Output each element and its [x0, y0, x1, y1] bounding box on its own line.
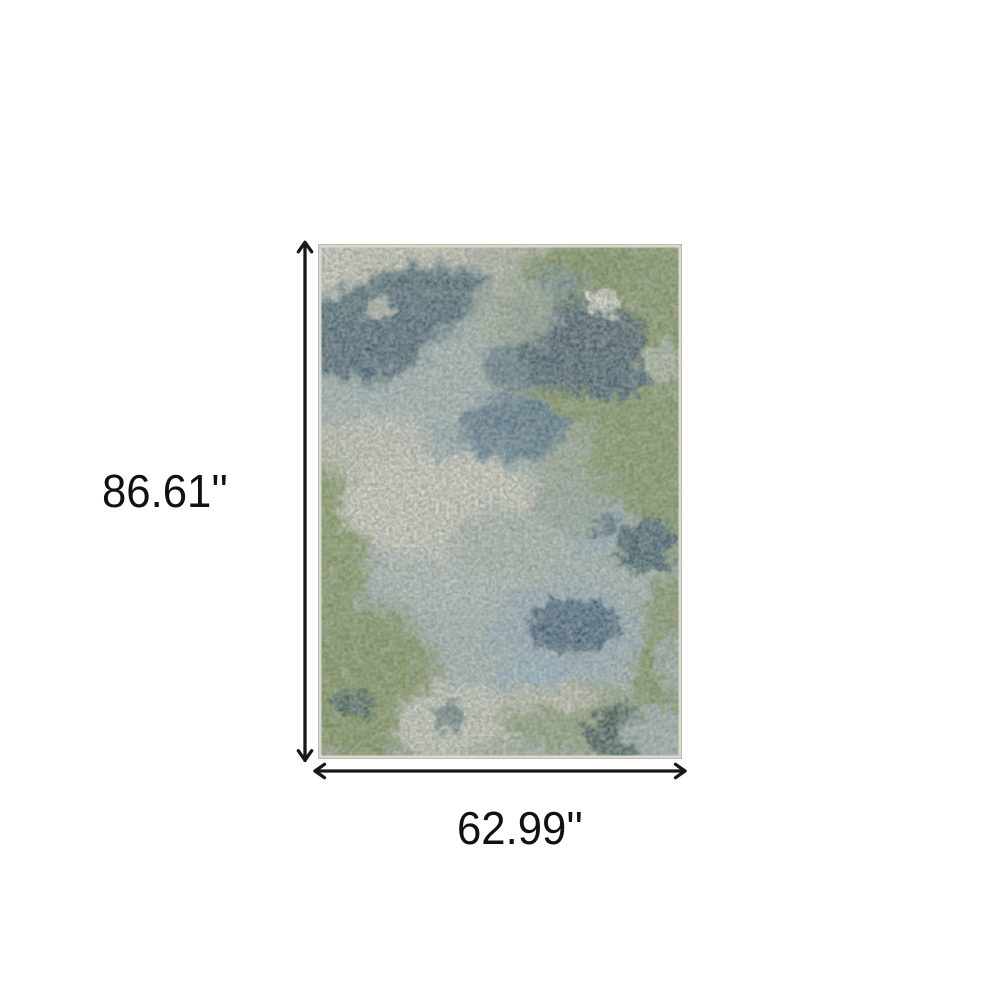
svg-text:86.61'': 86.61'': [102, 465, 228, 517]
svg-text:62.99'': 62.99'': [457, 802, 583, 854]
